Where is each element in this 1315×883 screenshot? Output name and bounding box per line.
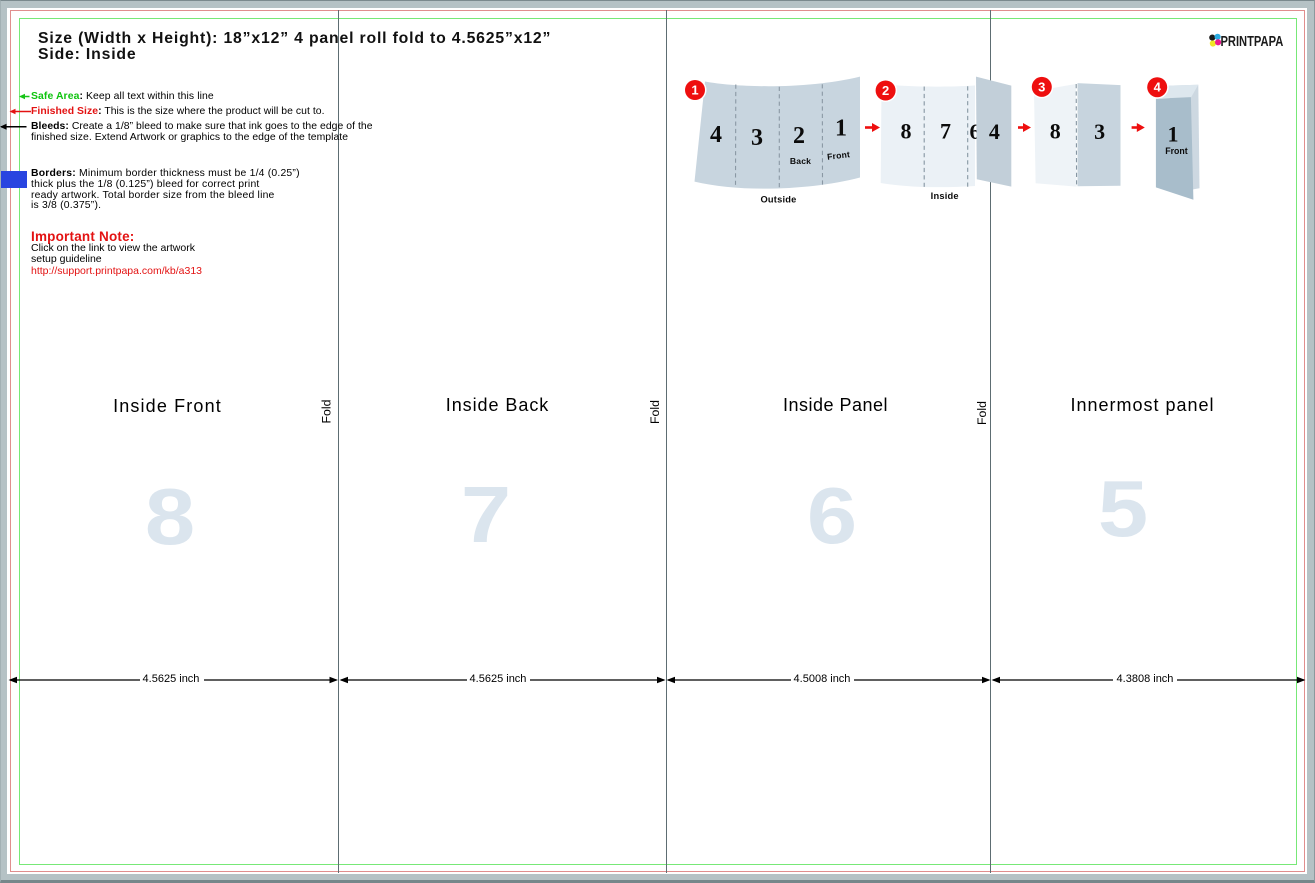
svg-text:4: 4 bbox=[989, 119, 1000, 144]
svg-text:Front: Front bbox=[1165, 146, 1188, 156]
svg-text:8: 8 bbox=[1050, 119, 1061, 144]
svg-text:Outside: Outside bbox=[760, 195, 796, 205]
svg-text:8: 8 bbox=[901, 119, 912, 144]
svg-text:Fold: Fold bbox=[975, 401, 989, 425]
svg-text:4: 4 bbox=[1154, 80, 1162, 95]
svg-text:4: 4 bbox=[710, 122, 722, 148]
svg-text:1: 1 bbox=[1168, 122, 1179, 147]
svg-text:Inside: Inside bbox=[931, 191, 959, 201]
svg-text:2: 2 bbox=[882, 83, 889, 98]
svg-text:3: 3 bbox=[1094, 119, 1105, 144]
svg-text:Fold: Fold bbox=[320, 399, 334, 423]
svg-text:PRINTPAPA: PRINTPAPA bbox=[1220, 33, 1283, 50]
svg-text:2: 2 bbox=[793, 123, 805, 149]
svg-text:1: 1 bbox=[691, 83, 698, 98]
svg-text:Back: Back bbox=[790, 156, 811, 166]
svg-text:3: 3 bbox=[1038, 79, 1045, 94]
svg-text:3: 3 bbox=[751, 125, 763, 151]
svg-text:1: 1 bbox=[835, 116, 847, 142]
svg-text:7: 7 bbox=[940, 119, 951, 144]
svg-text:Fold: Fold bbox=[648, 400, 662, 424]
